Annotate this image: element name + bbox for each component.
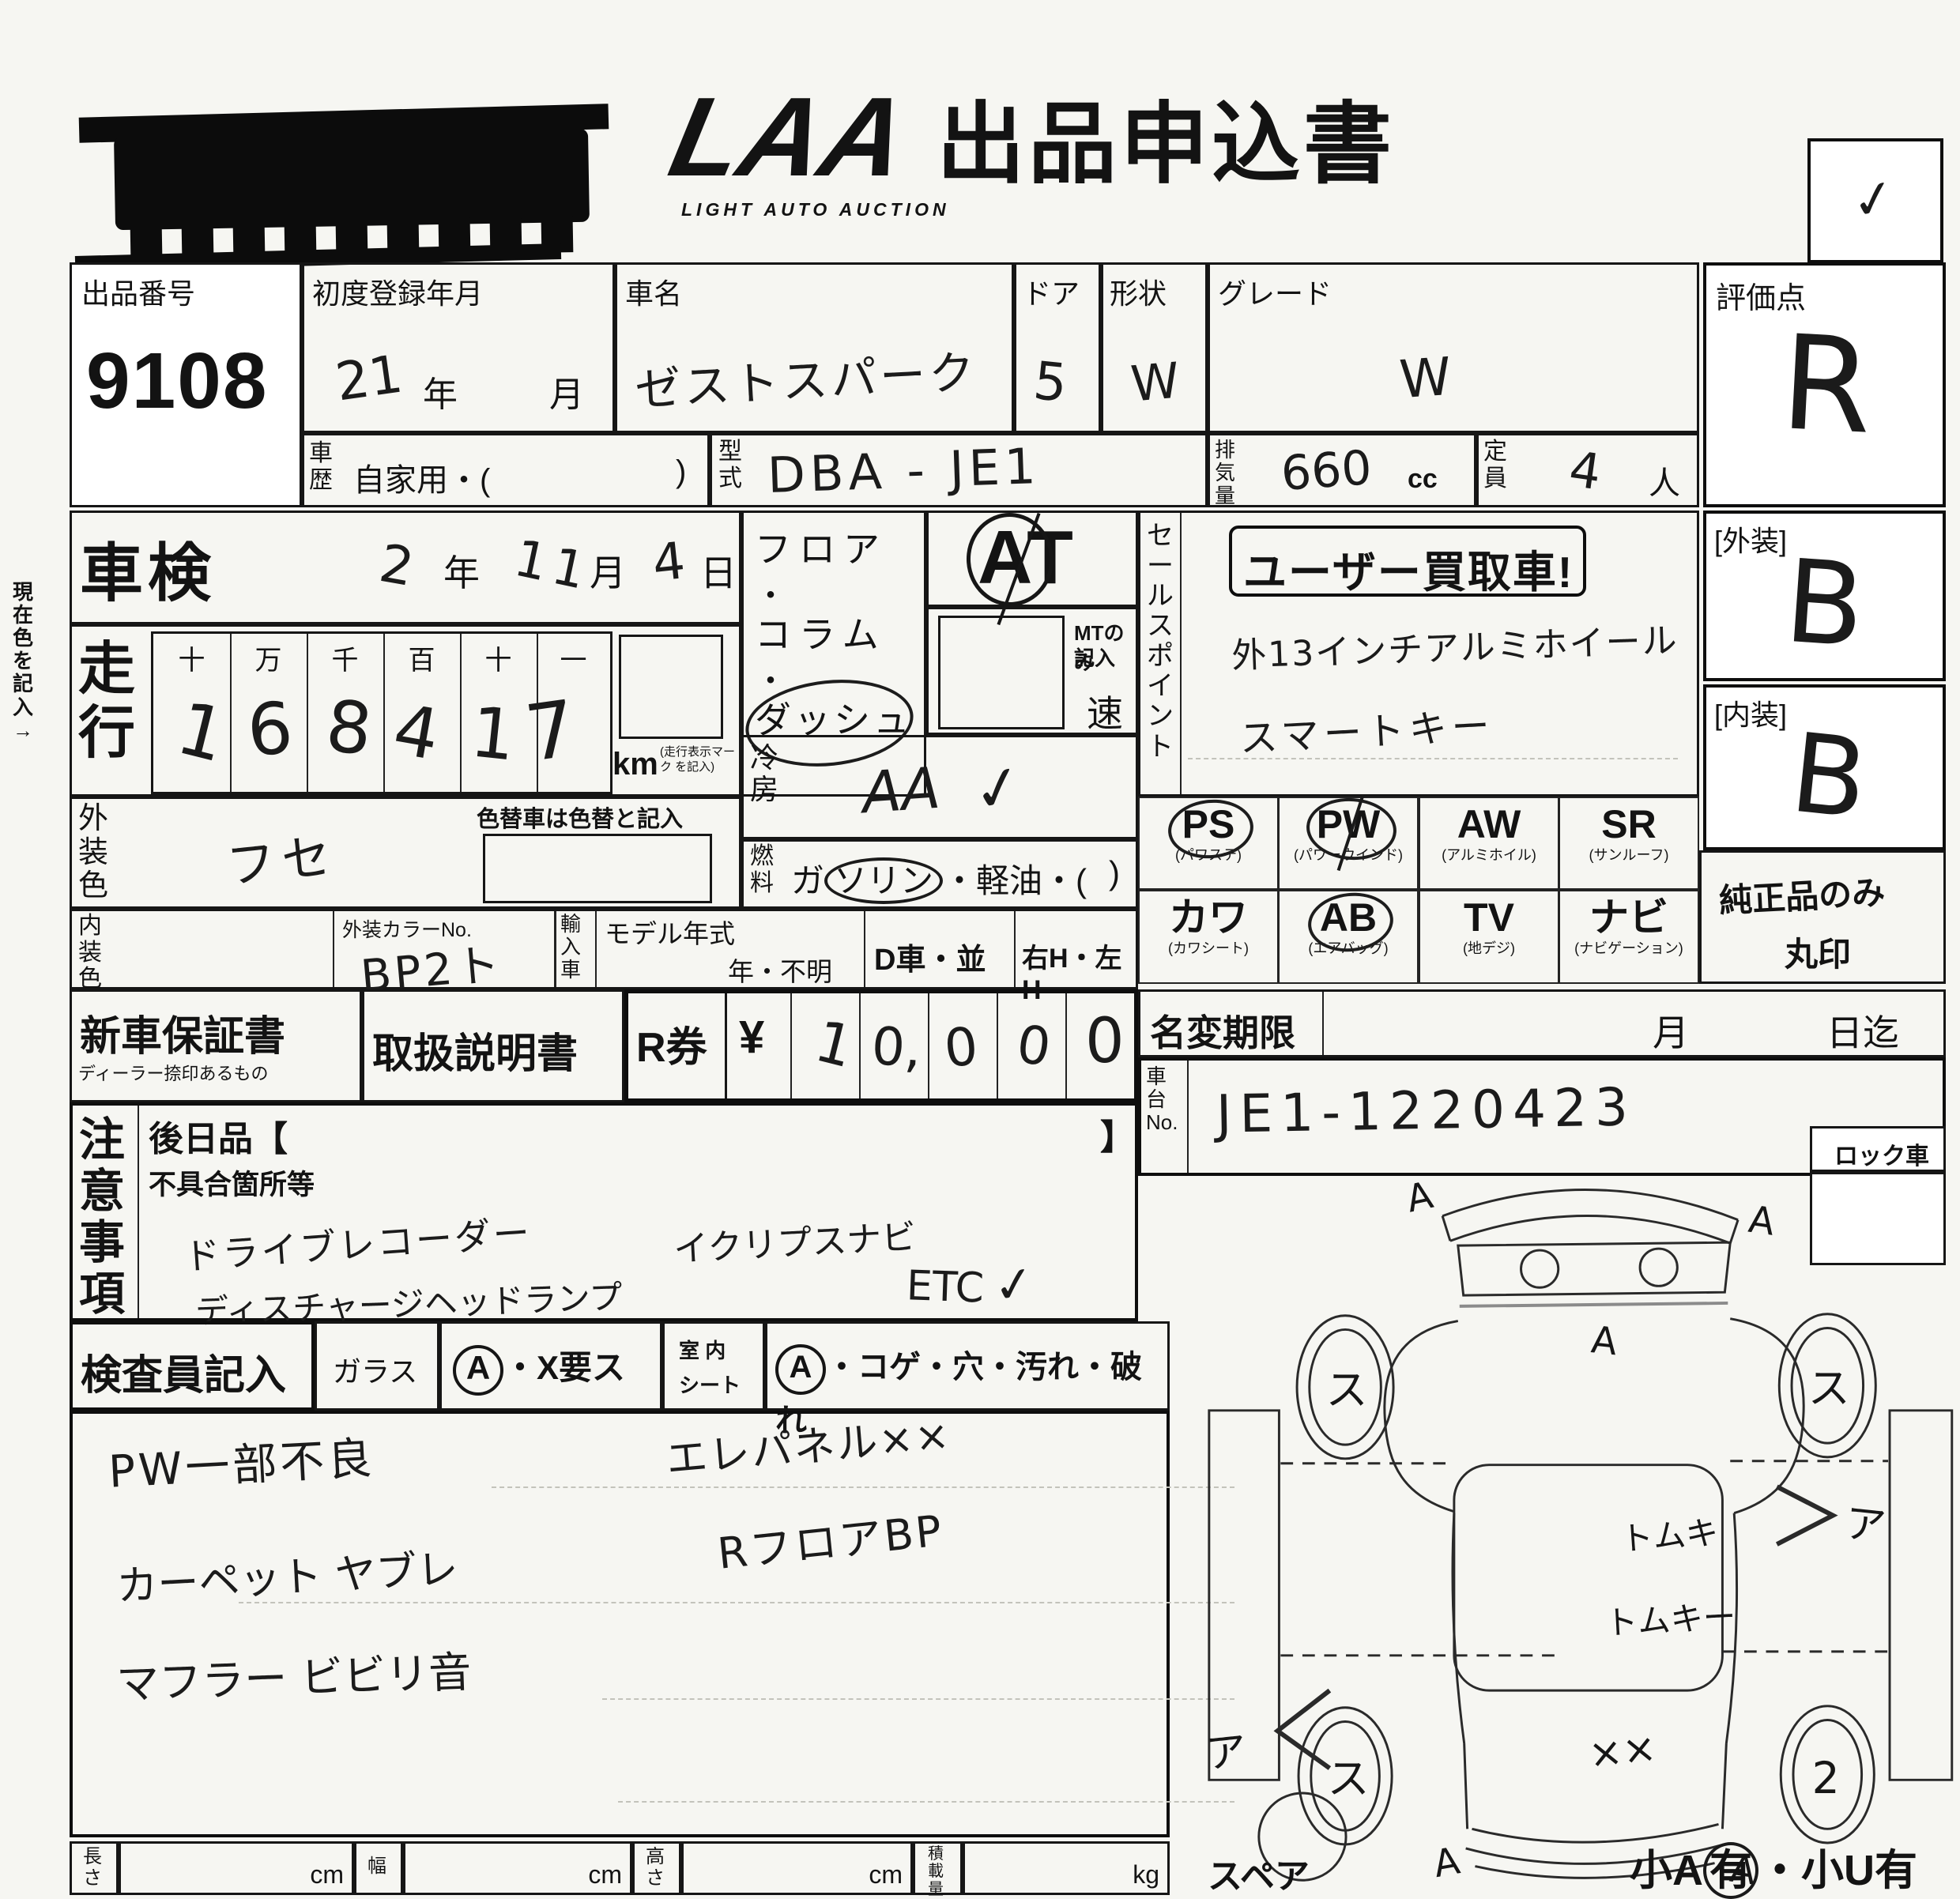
genuine-parts-line1: 純正品のみ: [1718, 866, 1886, 923]
mark-center-1: トムキ: [1619, 1513, 1720, 1558]
history-label: 車歴: [309, 440, 336, 493]
fuel-label: 燃料: [750, 843, 777, 896]
name-change-label: 名変期限: [1150, 1004, 1295, 1057]
option-code: AW: [1420, 804, 1558, 844]
history-value: 自家用・(: [353, 454, 490, 500]
odometer-col-header: 一: [537, 639, 610, 677]
page-title: 出品申込書: [937, 73, 1395, 201]
shaken-cell: 車検 2 年 11 月 4 日: [70, 511, 741, 624]
mt-speed-unit: 速: [1087, 685, 1123, 737]
inspector-seat-line1: 室 内: [679, 1335, 726, 1364]
r-ticket-digit: 1: [809, 1008, 861, 1081]
option-cell-ab: AB (エアバッグ): [1278, 890, 1419, 984]
option-code: カワ: [1140, 898, 1277, 937]
option-cell-navi: ナビ (ナビゲーション): [1559, 890, 1699, 984]
sales-point-line1: 外13インチアルミホイール: [1231, 612, 1679, 678]
notes-hand-4: ETC: [906, 1262, 985, 1312]
spare-label: スペア: [1208, 1848, 1310, 1898]
shaken-month-value: 11: [509, 529, 597, 603]
option-name: (サンルーフ): [1560, 844, 1698, 865]
grade-value: W: [1397, 346, 1453, 410]
first-registration-label: 初度登録年月: [312, 271, 483, 312]
inspector-body: PW一部不良 エレパネル×× カーペット ヤブレ RフロアBP マフラー ビビリ…: [70, 1411, 1170, 1837]
inspector-glass-opts-cell: A・X要ス: [439, 1321, 662, 1411]
odometer-digit: 1: [467, 691, 519, 776]
inspector-hand-3: カーペット ヤブレ: [115, 1535, 459, 1613]
shaken-day-value: 4: [650, 532, 688, 593]
laa-logo-subtext: LIGHT AUTO AUCTION: [681, 199, 950, 220]
name-change-month: 月: [1653, 1004, 1689, 1057]
load-label-cell: 積載量: [913, 1841, 963, 1895]
option-name: (地デジ): [1420, 937, 1558, 958]
aircon-check: ✓: [966, 748, 1030, 827]
exterior-score-label: [外装]: [1714, 518, 1787, 560]
genuine-parts-line2: 丸印: [1785, 928, 1851, 976]
exterior-color-label: 外装色: [78, 802, 113, 903]
current-color-note: 現在色を記入→: [13, 581, 38, 742]
mark-side-right: ア: [1843, 1500, 1888, 1550]
shift-column: コラム: [755, 606, 887, 658]
car-name-label: 車名: [625, 271, 682, 312]
mt-cell: MTのみ 記入 速: [926, 607, 1138, 735]
inspector-hand-4: RフロアBP: [714, 1495, 947, 1581]
inspector-hand-5: マフラー ビビリ音: [115, 1637, 473, 1712]
shaken-month-unit: 月: [590, 544, 626, 597]
capacity-cell: 定員 4 人: [1476, 433, 1699, 507]
model-year-label: モデル年式: [605, 913, 735, 951]
inspector-glass-a: A: [453, 1345, 503, 1396]
lot-number-label: 出品番号: [81, 271, 195, 312]
inspector-header-main: 検査員記入: [70, 1321, 315, 1411]
interior-color-label: 内装色: [78, 913, 105, 993]
first-registration-cell: 初度登録年月 21 年 月: [302, 262, 615, 433]
width-label-cell: 幅: [354, 1841, 403, 1895]
notes-hand-1: ドライブレコーダー: [182, 1204, 533, 1281]
user-buyback-stamp-text: ユーザー買取車!: [1243, 537, 1574, 600]
r-ticket-label: R券: [636, 1014, 707, 1073]
capacity-unit: 人: [1649, 458, 1680, 503]
width-label: 幅: [367, 1856, 390, 1878]
shaken-label: 車検: [80, 522, 216, 614]
inspector-hand-2: エレパネル××: [663, 1401, 952, 1485]
inspector-hand-1: PW一部不良: [107, 1422, 376, 1501]
inspector-seat-a: A: [775, 1344, 826, 1395]
option-cell-kawa: カワ (カワシート): [1138, 890, 1279, 984]
odometer-col-header: 十: [153, 639, 230, 677]
fuel-post: ・軽油・(: [943, 862, 1087, 899]
notes-label: 注意事項: [79, 1115, 126, 1321]
lot-number-value: 9108: [86, 336, 268, 427]
odometer-mark-box: [619, 635, 723, 739]
height-value-cell: cm: [681, 1841, 913, 1895]
lock-car-box: [1810, 1172, 1946, 1265]
height-label: 高さ: [646, 1847, 668, 1890]
displacement-value: 660: [1280, 440, 1374, 502]
odometer-label: 走行: [78, 638, 141, 765]
doors-value: 5: [1031, 350, 1070, 414]
mark-side-left: ア: [1204, 1728, 1249, 1778]
displacement-cell: 排気量 660 cc: [1208, 433, 1476, 507]
option-cell-sr: SR (サンルーフ): [1559, 797, 1699, 890]
notes-block: 注意事項 後日品【 】 不具合箇所等 ドライブレコーダー イクリプスナビ ディス…: [70, 1102, 1138, 1321]
capacity-label: 定員: [1483, 439, 1510, 492]
notes-later-close: 】: [1100, 1109, 1135, 1159]
odometer-col-header: 十: [460, 639, 537, 677]
odometer-col-header: 万: [230, 639, 307, 677]
length-unit: cm: [310, 1860, 344, 1890]
shaken-year-value: 2: [375, 533, 419, 598]
mark-rear-left: A: [1430, 1839, 1463, 1886]
load-unit: kg: [1133, 1860, 1159, 1890]
aircon-row: 冷房 AA ✓: [741, 735, 1138, 839]
warranty-cell: 新車保証書 ディーラー捺印あるもの: [70, 989, 362, 1102]
sales-point-line2: スマートキー: [1238, 695, 1495, 763]
load-value-cell: kg: [963, 1841, 1170, 1895]
odometer-row: 走行 十 万 千 百 十 一 1 6 8 4 1 7 km (走行表示マーク を…: [70, 624, 741, 797]
shift-floor: フロア: [755, 521, 888, 573]
fuel-circled: ソリン: [824, 857, 943, 904]
option-code: TV: [1420, 898, 1558, 937]
shape-value: W: [1129, 351, 1182, 413]
inspector-seat-opts-cell: A・コゲ・穴・汚れ・破れ: [765, 1321, 1170, 1411]
model-code-cell: 型式 DBA - JE1: [710, 433, 1208, 507]
grade-label: グレード: [1218, 271, 1332, 312]
genuine-parts-cell: 純正品のみ 丸印: [1699, 850, 1946, 984]
history-close: ): [676, 454, 686, 490]
aircon-value: AA: [860, 755, 942, 827]
user-buyback-stamp: ユーザー買取車!: [1229, 526, 1586, 597]
model-code-label: 型式: [718, 439, 745, 492]
chassis-label: 車台No.: [1146, 1065, 1181, 1134]
fuel-pre: ガ: [791, 862, 824, 899]
option-code: ナビ: [1560, 898, 1698, 937]
mark-front-left: A: [1403, 1174, 1437, 1222]
r-ticket-digit: 0: [1085, 1006, 1125, 1077]
option-cell-tv: TV (地デジ): [1419, 890, 1559, 984]
manual-cell: 取扱説明書: [362, 989, 624, 1102]
r-ticket-digit: 0: [941, 1015, 981, 1079]
small-damage-note-post: 小U有: [1801, 1847, 1917, 1894]
header-checkbox-mark: ✓: [1847, 166, 1901, 233]
at-cell: AT: [926, 511, 1138, 607]
doors-cell: ドア 5: [1014, 262, 1101, 433]
car-name-cell: 車名 ゼストスパーク: [615, 262, 1014, 433]
option-cell-ps: PS (パワステ): [1138, 797, 1279, 890]
length-value-cell: cm: [119, 1841, 354, 1895]
recolor-note: 色替車は色替と記入: [477, 801, 683, 834]
name-change-row: 名変期限 月 日迄: [1138, 989, 1946, 1057]
lot-number-cell: 出品番号 9108: [70, 262, 302, 507]
mark-center-2: トムキー: [1604, 1598, 1737, 1643]
fuel-row: 燃料 ガソリン・軽油・( ): [741, 839, 1138, 909]
aircon-label: 冷房: [750, 742, 782, 806]
height-label-cell: 高さ: [632, 1841, 681, 1895]
score-value: R: [1777, 307, 1876, 463]
height-unit: cm: [869, 1860, 903, 1890]
r-ticket-digit: 0: [1013, 1013, 1054, 1078]
inspector-seat-line2: シート: [679, 1370, 741, 1399]
r-ticket-cell: R券 ¥ 1 0, 0 0 0: [624, 989, 1138, 1102]
first-registration-year-unit: 年: [423, 366, 458, 416]
history-cell: 車歴 自家用・( ): [302, 433, 710, 507]
shaken-day-unit: 日: [700, 544, 737, 597]
grade-cell: グレード W: [1208, 262, 1699, 433]
manual-label: 取扱説明書: [372, 1020, 578, 1079]
inspector-glass-rest: ・X要ス: [503, 1349, 625, 1386]
r-ticket-digit: 0,: [869, 1015, 923, 1079]
mt-note-2: 記入: [1074, 642, 1115, 672]
notes-defect-label: 不具合箇所等: [149, 1162, 315, 1203]
exterior-score-value: B: [1781, 535, 1868, 674]
notes-hand-4-check: ✓: [989, 1253, 1038, 1317]
score-cell: 評価点 R: [1703, 262, 1946, 507]
small-damage-note-circled: 有: [1703, 1842, 1758, 1899]
small-damage-note-pre: 小A: [1630, 1847, 1703, 1894]
odometer-unit: km: [612, 747, 658, 782]
inspector-label: 検査員記入: [81, 1342, 286, 1401]
exterior-color-value: フセ: [223, 816, 341, 898]
option-code: SR: [1560, 804, 1698, 844]
capacity-value: 4: [1566, 440, 1604, 502]
car-name-value: ゼストスパーク: [633, 335, 979, 420]
mark-rear-wheel-right: 2: [1812, 1753, 1840, 1803]
warranty-sublabel: ディーラー捺印あるもの: [78, 1060, 268, 1085]
mark-rear-wheel-left: ス: [1327, 1754, 1369, 1803]
lock-car-label: ロック車: [1834, 1136, 1929, 1171]
odometer-unit-note: (走行表示マーク を記入): [660, 745, 739, 775]
odometer-digit: 6: [244, 687, 295, 773]
mark-hood: A: [1589, 1318, 1619, 1364]
interior-score-box: [内装] B: [1703, 684, 1946, 850]
width-value-cell: cm: [403, 1841, 632, 1895]
odometer-col-header: 百: [383, 639, 460, 677]
exterior-score-box: [外装] B: [1703, 511, 1946, 681]
option-name: (アルミホイル): [1420, 844, 1558, 865]
laa-logo: LAA: [660, 73, 918, 202]
auction-sheet: { "header": { "logo_text": "LAA", "logo_…: [0, 0, 1960, 1897]
sales-point-label: セールスポイント: [1147, 521, 1175, 762]
doors-label: ドア: [1023, 271, 1080, 312]
shape-cell: 形状 W: [1101, 262, 1208, 433]
notes-hand-2: イクリプスナビ: [673, 1208, 918, 1272]
interior-score-value: B: [1785, 709, 1873, 843]
notes-later-label: 後日品【: [149, 1110, 288, 1161]
redacted-stamp-block: [114, 129, 590, 230]
option-cell-pw: PW (パワーウインド): [1278, 797, 1419, 890]
d-car-label: D車・並: [874, 935, 986, 978]
length-label: 長さ: [83, 1847, 105, 1890]
inspector-seat-cell: 室 内 シート: [662, 1321, 765, 1411]
name-change-until: 日迄: [1826, 1004, 1899, 1057]
option-cell-aw: AW (アルミホイル): [1419, 797, 1559, 890]
interior-color-row: 内装色 外装カラーNo. BP2ト 輸入車 モデル年式 年・不明 D車・並 右H…: [70, 909, 1138, 989]
lock-car-label-cell: ロック車: [1810, 1126, 1946, 1172]
warranty-label: 新車保証書: [80, 1003, 285, 1062]
model-code-value: DBA - JE1: [767, 437, 1042, 504]
small-damage-note: 小A有・小U有: [1630, 1835, 1917, 1897]
mark-front-wheel-right: ス: [1808, 1364, 1850, 1413]
width-unit: cm: [588, 1860, 622, 1890]
mark-front-wheel-left: ス: [1325, 1366, 1367, 1415]
fuel-close: ): [1109, 854, 1120, 892]
sales-point-cell: セールスポイント ユーザー買取車! 外13インチアルミホイール スマートキー: [1138, 511, 1699, 797]
recolor-box: [483, 834, 712, 903]
first-registration-month-unit: 月: [549, 366, 584, 416]
odometer-col-header: 千: [307, 639, 383, 677]
mt-gear-box: [938, 616, 1065, 729]
exterior-color-row: 外装色 フセ 色替車は色替と記入: [70, 797, 741, 909]
first-registration-year-value: 21: [332, 344, 406, 413]
shape-label: 形状: [1110, 271, 1167, 312]
option-name: (ナビゲーション): [1560, 937, 1698, 958]
load-label: 積載量: [928, 1845, 947, 1898]
model-year-value: 年・不明: [728, 951, 832, 989]
header-checkbox: ✓: [1807, 138, 1943, 263]
inspector-glass-cell: ガラス: [315, 1321, 439, 1411]
small-damage-note-mid: ・: [1758, 1847, 1801, 1894]
length-label-cell: 長さ: [70, 1841, 119, 1895]
r-ticket-currency: ¥: [739, 1011, 764, 1064]
mark-front-right: A: [1746, 1198, 1777, 1245]
shaken-year-unit: 年: [443, 544, 480, 597]
inspector-glass-label: ガラス: [333, 1349, 417, 1390]
displacement-label: 排気量: [1215, 439, 1238, 507]
import-label: 輸入車: [560, 913, 584, 982]
chassis-value: JE1-1220423: [1216, 1076, 1636, 1144]
odometer-digit: 8: [322, 684, 376, 771]
interior-score-label: [内装]: [1714, 692, 1787, 733]
option-name: (カワシート): [1140, 937, 1277, 958]
displacement-unit: cc: [1408, 464, 1438, 495]
mark-rear-x: ××: [1586, 1725, 1658, 1779]
